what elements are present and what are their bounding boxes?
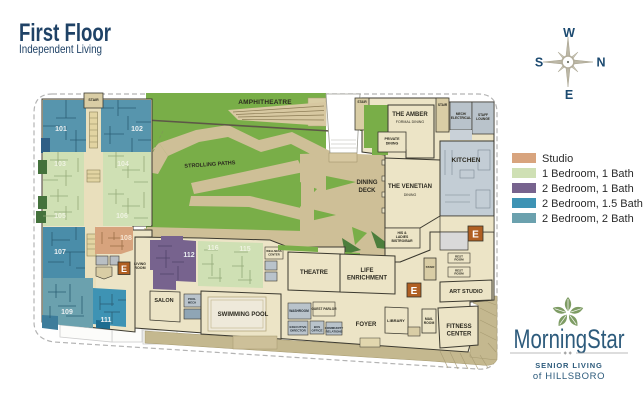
svg-text:MorningStar: MorningStar (514, 324, 625, 354)
svg-text:AMPHITHEATRE: AMPHITHEATRE (238, 99, 292, 106)
svg-text:W: W (563, 26, 575, 40)
svg-text:THEATRE: THEATRE (300, 270, 328, 276)
svg-text:112: 112 (183, 252, 194, 259)
svg-text:CENTER: CENTER (268, 253, 280, 257)
svg-text:Studio: Studio (542, 153, 573, 165)
svg-text:ROOM: ROOM (134, 266, 145, 270)
svg-text:116: 116 (207, 245, 218, 252)
svg-text:DINING: DINING (386, 142, 399, 146)
svg-text:ROOM: ROOM (454, 272, 464, 276)
svg-text:109: 109 (61, 309, 73, 316)
svg-text:LIFE: LIFE (361, 268, 374, 274)
svg-text:LIBRARY: LIBRARY (387, 318, 405, 323)
svg-text:ROOM: ROOM (454, 258, 464, 262)
svg-text:DINING: DINING (357, 180, 378, 186)
svg-text:WASHROOM: WASHROOM (289, 309, 309, 313)
svg-text:CENTER: CENTER (447, 332, 472, 338)
svg-text:E: E (565, 88, 573, 102)
svg-text:Independent Living: Independent Living (19, 42, 102, 56)
svg-text:105: 105 (54, 213, 66, 220)
svg-text:S: S (535, 56, 543, 70)
svg-text:102: 102 (131, 126, 143, 133)
svg-text:107: 107 (54, 249, 66, 256)
svg-text:LOUNGE: LOUNGE (476, 117, 490, 121)
svg-text:STAIR: STAIR (426, 265, 436, 269)
svg-text:STAIR: STAIR (438, 103, 448, 107)
svg-text:DIRECTOR: DIRECTOR (290, 329, 306, 333)
svg-text:2 Bedroom, 2 Bath: 2 Bedroom, 2 Bath (542, 213, 634, 225)
svg-text:BISTRO/BAR: BISTRO/BAR (391, 239, 413, 243)
svg-text:E: E (411, 286, 418, 297)
svg-text:108: 108 (120, 235, 132, 242)
svg-text:115: 115 (239, 246, 250, 253)
svg-text:SALON: SALON (154, 298, 173, 304)
svg-text:FITNESS: FITNESS (446, 324, 471, 330)
svg-text:ENRICHMENT: ENRICHMENT (347, 276, 387, 282)
svg-text:RELATIONS: RELATIONS (325, 330, 342, 334)
svg-text:STAIR: STAIR (88, 98, 99, 102)
svg-text:ELECTRICAL: ELECTRICAL (451, 116, 471, 120)
svg-text:SWIMMING POOL: SWIMMING POOL (218, 312, 269, 318)
svg-text:2 Bedroom, 1 Bath: 2 Bedroom, 1 Bath (542, 183, 634, 195)
svg-text:SENIOR LIVING: SENIOR LIVING (535, 361, 603, 370)
svg-text:1 Bedroom, 1 Bath: 1 Bedroom, 1 Bath (542, 168, 634, 180)
svg-text:of HILLSBORO: of HILLSBORO (533, 371, 605, 382)
svg-text:MECH: MECH (188, 301, 196, 305)
svg-text:OFFICE: OFFICE (312, 329, 323, 333)
svg-text:GUEST PARLOR: GUEST PARLOR (311, 307, 337, 311)
svg-text:PRIVATE: PRIVATE (384, 137, 400, 141)
svg-text:103: 103 (54, 161, 66, 168)
svg-text:2 Bedroom, 1.5 Bath: 2 Bedroom, 1.5 Bath (542, 198, 643, 210)
svg-text:DINING: DINING (404, 193, 417, 197)
svg-text:E: E (472, 230, 479, 241)
svg-text:KITCHEN: KITCHEN (452, 157, 481, 164)
svg-text:N: N (596, 56, 605, 70)
svg-text:104: 104 (117, 161, 129, 168)
svg-text:FORMAL DINING: FORMAL DINING (396, 120, 425, 124)
svg-text:106: 106 (116, 213, 128, 220)
svg-text:FOYER: FOYER (356, 322, 377, 328)
svg-text:STAIR: STAIR (357, 100, 367, 104)
svg-text:101: 101 (55, 126, 67, 133)
svg-text:DECK: DECK (358, 188, 376, 194)
svg-text:THE VENETIAN: THE VENETIAN (388, 184, 432, 190)
svg-text:ROOM: ROOM (424, 321, 435, 325)
svg-text:ART STUDIO: ART STUDIO (449, 289, 483, 295)
svg-text:THE AMBER: THE AMBER (392, 112, 428, 118)
svg-text:E: E (121, 264, 127, 274)
svg-text:111: 111 (101, 317, 112, 324)
